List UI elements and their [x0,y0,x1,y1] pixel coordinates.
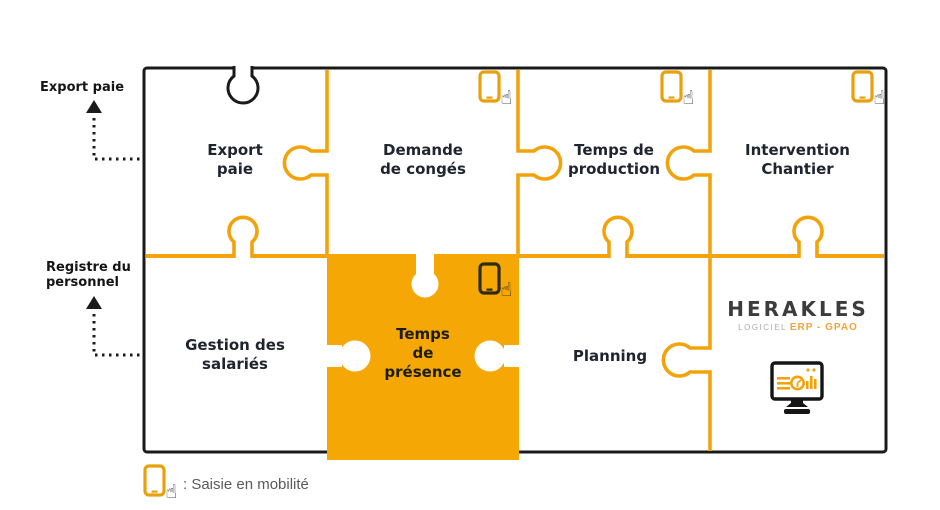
tablet-icon-demande-de-conges: ☝ [478,70,504,104]
touch-hand-icon: ☝ [500,89,512,108]
piece-label-demande-de-conges: Demande de congés [329,141,517,179]
legend-tablet-icon: ☝ [143,464,169,498]
dashboard-monitor-icon [763,360,831,418]
brand-block: HERAKLES LOGICIEL ERP - GPAO [712,297,884,333]
brand-tagline: LOGICIEL ERP - GPAO [712,322,884,333]
brand-tagline-prefix: LOGICIEL [738,323,787,332]
annotation-registre-personnel: Registre du personnel [46,260,131,290]
piece-label-temps-de-production: Temps de production [520,141,708,179]
export-paie-arrow [86,100,141,159]
touch-hand-icon: ☝ [682,89,694,108]
piece-label-gestion-des-salaries: Gestion des salariés [143,336,327,374]
puzzle-skeleton [0,0,940,510]
tablet-icon-temps-de-presence: ☝ [478,262,504,296]
legend-label: : Saisie en mobilité [183,476,309,493]
top-keyhole-socket [228,66,258,103]
piece-label-export-paie: Export paie [143,141,327,179]
puzzle-diagram-canvas: Export paie Registre du personnel Export… [0,0,940,510]
brand-name: HERAKLES [712,297,884,321]
piece-label-temps-de-presence: Temps de présence [329,325,517,382]
piece-label-planning: Planning [520,347,700,366]
annotation-export-paie: Export paie [40,80,124,95]
touch-hand-icon: ☝ [165,483,177,502]
middle-divider-knobs [229,217,822,258]
touch-hand-icon: ☝ [873,89,885,108]
tablet-icon-intervention-chantier: ☝ [851,70,877,104]
brand-tagline-suffix: ERP - GPAO [790,322,858,333]
legend: ☝ : Saisie en mobilité [143,464,443,504]
registre-personnel-arrow [86,296,141,355]
divider-3 [663,70,710,451]
tablet-icon-temps-de-production: ☝ [660,70,686,104]
piece-label-intervention-chantier: Intervention Chantier [712,141,883,179]
touch-hand-icon: ☝ [500,281,512,300]
